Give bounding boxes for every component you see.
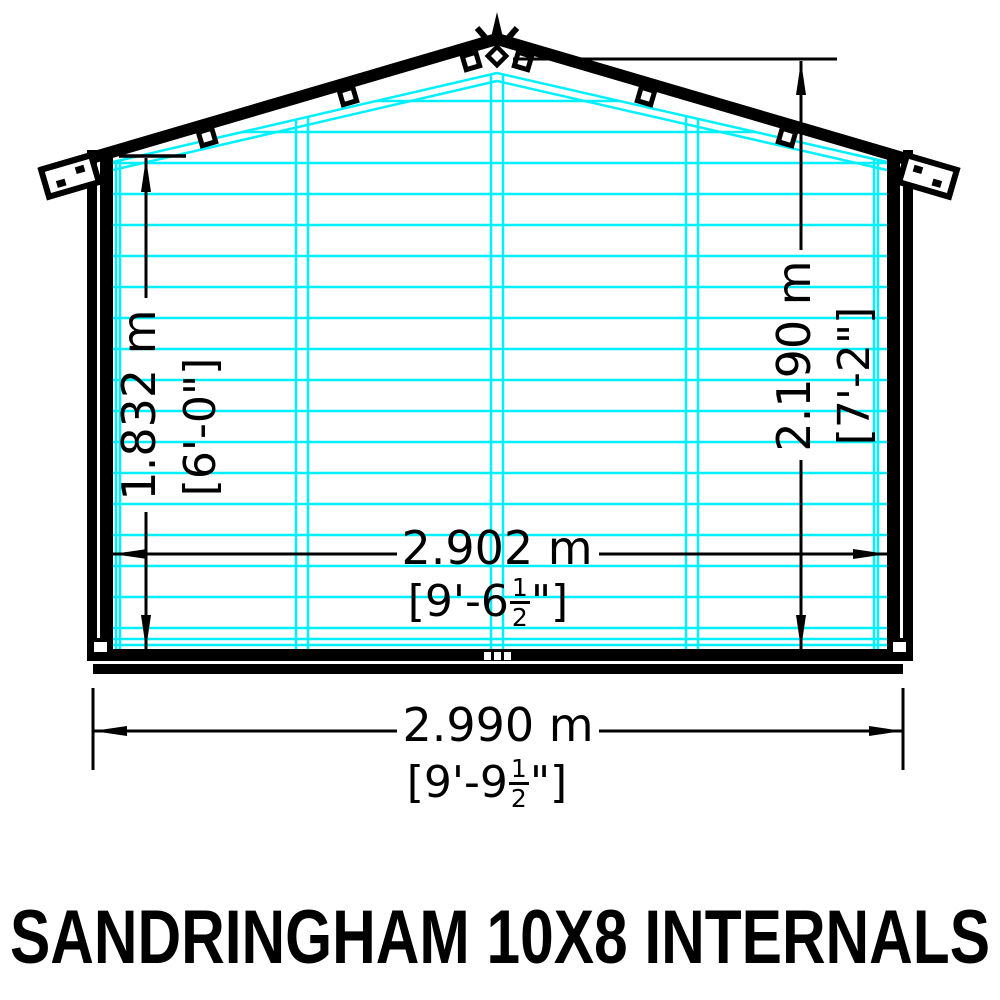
dimension-lines — [93, 59, 903, 770]
cladding-lines — [110, 60, 890, 652]
dim-internal-width — [113, 549, 887, 559]
walls — [87, 150, 913, 661]
right-wall-outer — [903, 150, 913, 661]
roof — [40, 12, 957, 197]
floor-assembly — [87, 649, 913, 674]
right-wall-inner — [887, 158, 900, 649]
dim-internal-height-left — [119, 156, 186, 649]
drawing-title: SANDRINGHAM 10X8 INTERNALS — [10, 895, 990, 980]
roof-slope-left — [40, 39, 497, 173]
left-wall-inner — [100, 158, 113, 649]
shed-line-drawing: SANDRINGHAM 10X8 INTERNALS — [0, 0, 1000, 1000]
finial — [477, 12, 517, 65]
drawing-canvas: SANDRINGHAM 10X8 INTERNALS 1.832 m [6'-0… — [0, 0, 1000, 1000]
dim-external-width — [93, 688, 903, 770]
left-wall-outer — [87, 150, 97, 661]
